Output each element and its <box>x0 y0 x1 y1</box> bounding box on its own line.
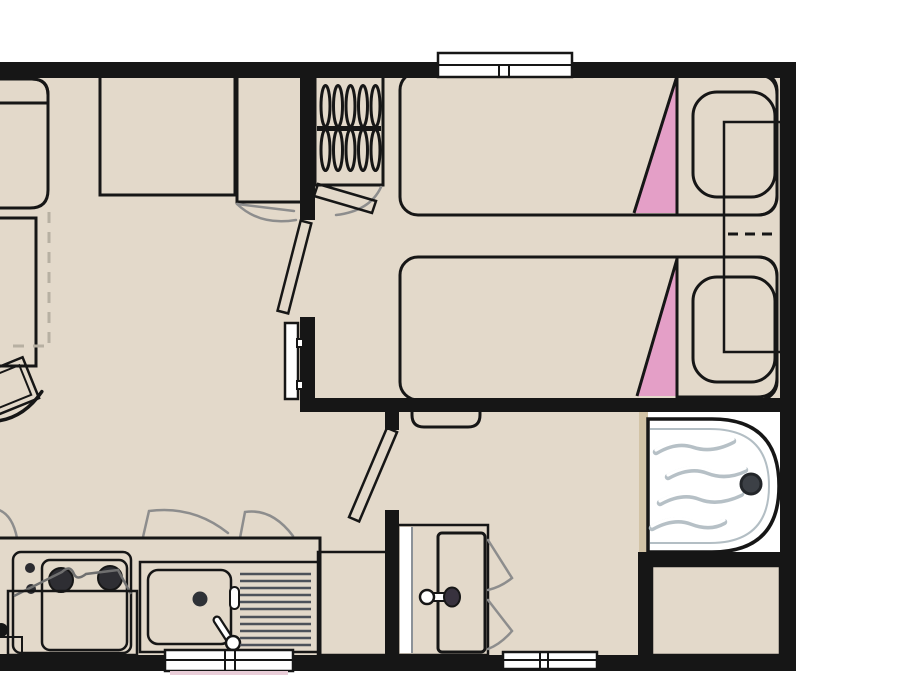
sink-drain <box>193 592 208 607</box>
window-top-bedroom <box>438 53 572 77</box>
window-bottom-bathroom <box>503 652 597 669</box>
bathroom-wall <box>385 510 399 655</box>
right-wall <box>780 62 796 671</box>
shower-wall-vertical <box>638 552 652 655</box>
shower-drain <box>741 474 761 494</box>
sink-side-handle <box>230 587 239 609</box>
hob-knob-1 <box>25 563 35 573</box>
window-bottom-kitchen <box>165 650 293 675</box>
faucet-ball <box>226 636 240 650</box>
partition-living-bedroom-lower <box>300 317 315 405</box>
floorplan-drawing <box>0 0 900 675</box>
top-wall <box>0 62 796 78</box>
shower <box>639 408 783 556</box>
vanity-left-strip <box>400 527 411 653</box>
bottom-wall <box>0 655 796 671</box>
floorplan-page <box>0 0 900 675</box>
partition-living-bedroom-upper <box>300 75 315 220</box>
shower-wall-horizontal <box>638 552 796 566</box>
faucet-handle <box>420 590 434 604</box>
faucet-spout <box>444 588 460 607</box>
bedroom-wall <box>300 398 796 412</box>
